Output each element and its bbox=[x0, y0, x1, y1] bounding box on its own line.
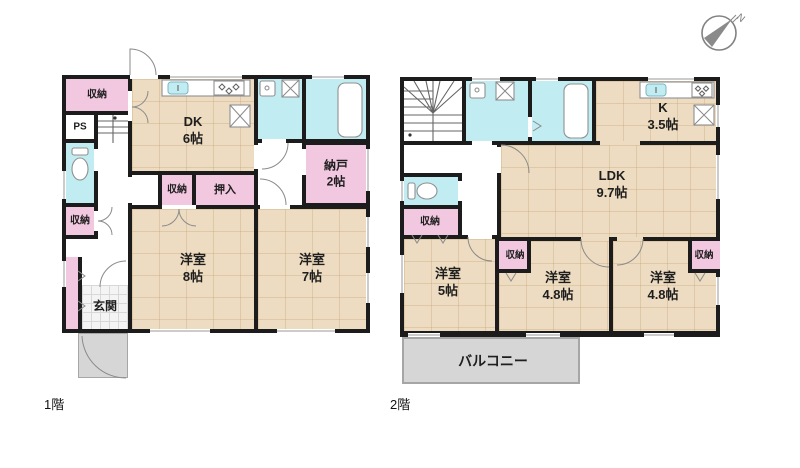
label-closet-mid-2f: 収納 bbox=[505, 250, 524, 262]
washroom-door-arc bbox=[262, 143, 288, 169]
compass-icon: N bbox=[698, 8, 748, 56]
fridge-space-icon-1f bbox=[230, 105, 250, 127]
vanity-sink-icon-2f bbox=[470, 83, 485, 98]
label-closet-right-2f: 収納 bbox=[694, 250, 713, 262]
floor1-plan: 収納 PS 収納 玄関 DK6帖 収納 押入 納戸2帖 洋室8帖 洋室7帖 bbox=[62, 75, 370, 333]
balcony: バルコニー bbox=[402, 337, 580, 384]
floor2-plan: K3.5帖 LDK9.7帖 収納 収納 収納 洋室5帖 洋室4.8帖 洋室4.8… bbox=[400, 77, 720, 337]
fridge-space-icon-2f bbox=[694, 105, 714, 125]
label-balcony: バルコニー bbox=[458, 352, 528, 370]
label-oshiire: 押入 bbox=[214, 183, 236, 197]
yoshitsu48b-door-arc bbox=[617, 239, 643, 265]
stairs-2f-treads bbox=[404, 81, 462, 141]
label-ldk: LDK9.7帖 bbox=[596, 168, 627, 202]
washer-icon-1f bbox=[282, 80, 299, 97]
label-genkan: 玄関 bbox=[93, 299, 117, 315]
yoshitsu8-double-door-arc bbox=[162, 209, 196, 226]
bathtub-icon-1f bbox=[338, 83, 362, 137]
toilet-icon-2f bbox=[408, 183, 437, 199]
label-closet-top-1f: 収納 bbox=[87, 89, 107, 102]
label-ps: PS bbox=[73, 121, 86, 134]
floor1-linework bbox=[62, 75, 370, 333]
floorplan-canvas: 収納 PS 収納 玄関 DK6帖 収納 押入 納戸2帖 洋室8帖 洋室7帖 bbox=[0, 0, 800, 468]
yoshitsu48a-door-arc bbox=[581, 239, 609, 267]
label-closet-hall-2f: 収納 bbox=[420, 216, 440, 229]
label-closet-hall-1f: 収納 bbox=[70, 215, 90, 228]
vanity-sink-icon-1f bbox=[260, 81, 275, 96]
label-yoshitsu48a: 洋室4.8帖 bbox=[542, 270, 573, 304]
stairs-1f-treads bbox=[98, 115, 128, 143]
toilet-icon-1f bbox=[72, 148, 88, 180]
floor1-title: 1階 bbox=[44, 394, 64, 413]
label-yoshitsu7: 洋室7帖 bbox=[299, 252, 325, 286]
closet-hall-door-arc bbox=[98, 207, 112, 235]
label-k: K3.5帖 bbox=[647, 100, 678, 134]
genkan-door-arc bbox=[100, 261, 126, 287]
label-dk: DK6帖 bbox=[183, 114, 203, 148]
bifold-marks-1f bbox=[78, 271, 85, 311]
dk-double-door-arc bbox=[132, 91, 148, 123]
yoshitsu7-door-arc bbox=[260, 179, 286, 205]
label-yoshitsu48b: 洋室4.8帖 bbox=[647, 270, 678, 304]
label-yoshitsu8: 洋室8帖 bbox=[180, 252, 206, 286]
label-yoshitsu5: 洋室5帖 bbox=[435, 266, 461, 300]
back-door-arc bbox=[130, 49, 156, 75]
porch-door-arc bbox=[79, 334, 129, 379]
ldk-door-arc bbox=[501, 145, 529, 173]
kitchen-counter-1f bbox=[162, 80, 250, 96]
entrance-porch bbox=[78, 333, 128, 378]
yoshitsu5-door-arc bbox=[468, 237, 492, 261]
compass-north-label: N bbox=[734, 12, 747, 25]
label-nando: 納戸2帖 bbox=[324, 158, 348, 189]
kitchen-counter-2f bbox=[640, 82, 714, 98]
bathtub-icon-2f bbox=[564, 84, 588, 138]
washer-icon-2f bbox=[496, 82, 514, 100]
label-closet-mid-1f: 収納 bbox=[167, 184, 187, 197]
bath-door-mark bbox=[533, 121, 541, 131]
floor2-title: 2階 bbox=[390, 394, 410, 413]
